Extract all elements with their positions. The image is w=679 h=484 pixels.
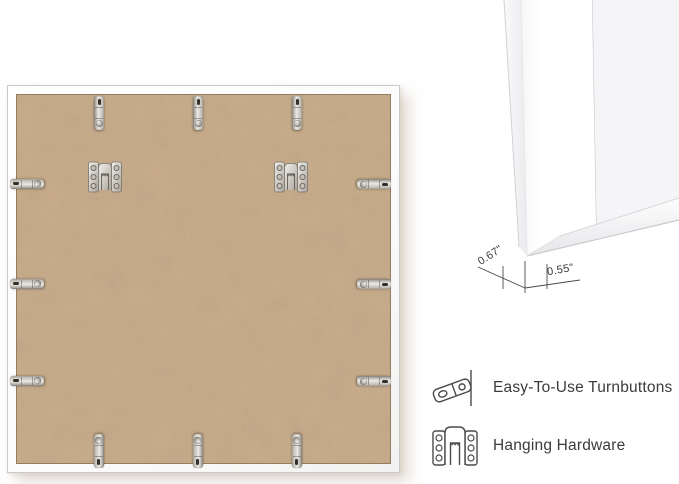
turnbutton	[193, 96, 203, 130]
frame-corner-detail: 0.67" 0.55"	[440, 0, 679, 310]
product-image: 0.67" 0.55" Easy-To-Use Turnbuttons	[0, 0, 679, 484]
turnbutton	[292, 434, 302, 468]
turnbutton	[357, 179, 391, 189]
depth-dimension-label: 0.67"	[476, 243, 505, 268]
turnbutton	[10, 279, 44, 289]
hanging-hardware	[274, 161, 308, 193]
frame-back-photo	[7, 85, 400, 473]
mdf-fiber-texture	[17, 95, 391, 464]
face-width-dimension-label: 0.55"	[546, 262, 575, 278]
turnbutton	[10, 376, 44, 386]
turnbutton	[357, 279, 391, 289]
turnbutton	[10, 179, 44, 189]
turnbutton	[94, 96, 104, 130]
frame-face	[521, 0, 596, 256]
feature-label: Hanging Hardware	[493, 437, 625, 455]
turnbutton-icon	[430, 367, 480, 409]
feature-label: Easy-To-Use Turnbuttons	[493, 379, 672, 397]
feature-turnbuttons: Easy-To-Use Turnbuttons	[430, 366, 672, 410]
turnbutton	[292, 96, 302, 130]
mdf-backing-board	[16, 94, 391, 464]
turnbutton	[193, 434, 203, 468]
hanging-hardware	[88, 161, 122, 193]
turnbutton	[94, 434, 104, 468]
feature-hanging-hardware: Hanging Hardware	[430, 422, 625, 470]
hanging-hardware-icon	[430, 423, 480, 469]
mat-area	[592, 0, 679, 224]
turnbutton	[357, 376, 391, 386]
